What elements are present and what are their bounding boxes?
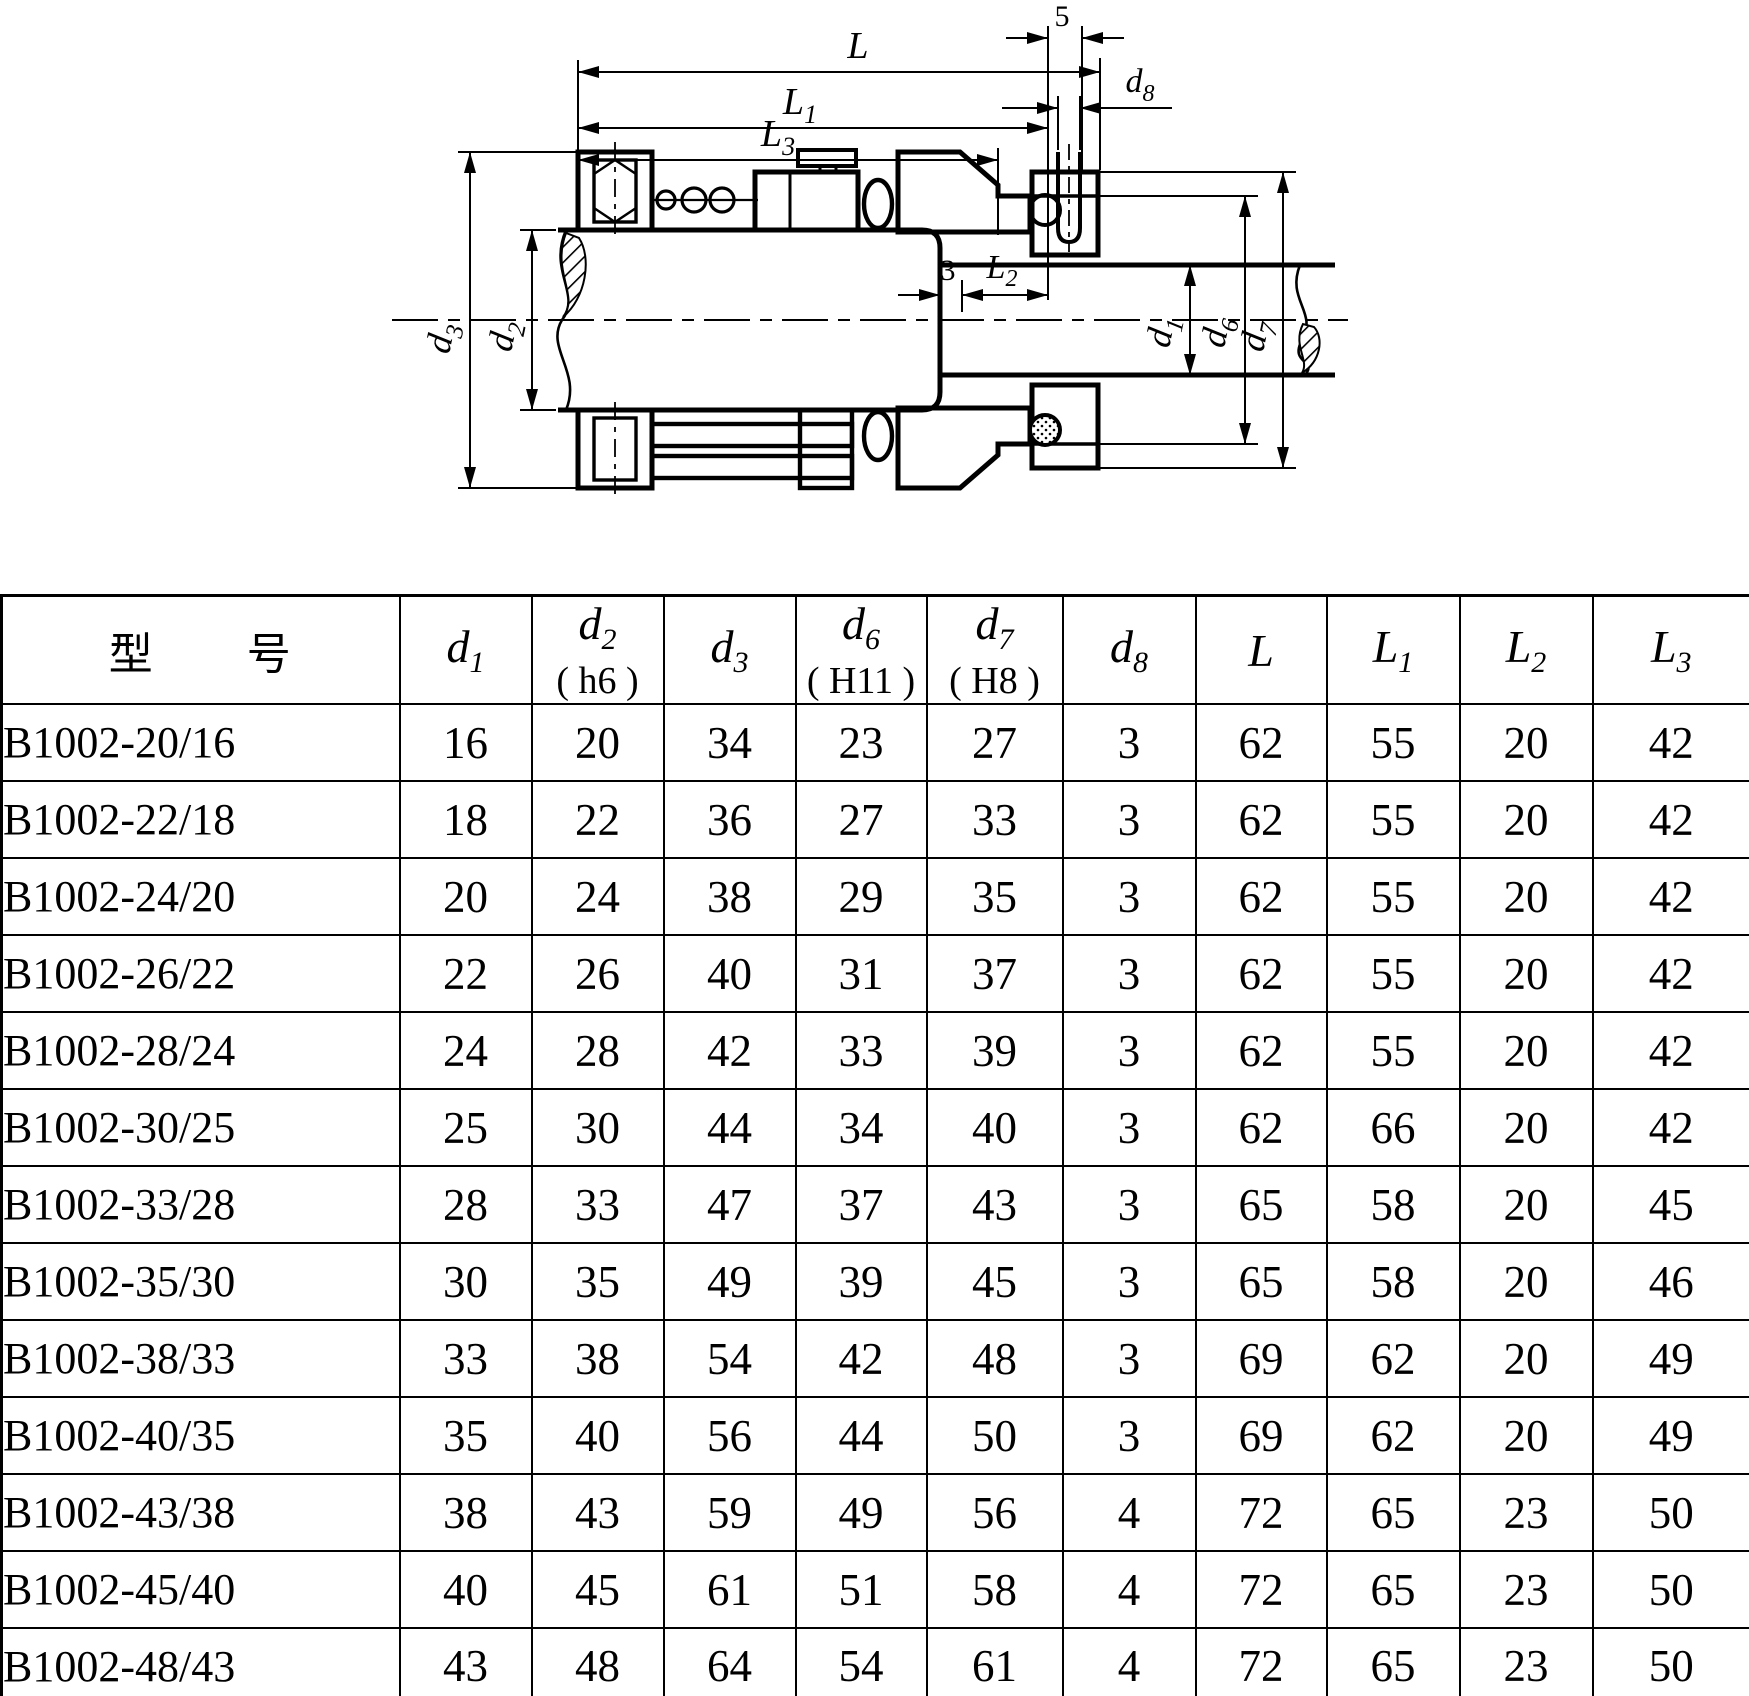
model-cell: B1002-22/18 [2, 781, 400, 858]
value-cell: 28 [532, 1012, 664, 1089]
value-cell: 62 [1327, 1320, 1460, 1397]
value-cell: 62 [1196, 935, 1327, 1012]
value-cell: 65 [1327, 1474, 1460, 1551]
tolerance-note: ( H8 ) [928, 659, 1062, 703]
value-cell: 39 [796, 1243, 927, 1320]
value-cell: 20 [1460, 1243, 1593, 1320]
value-cell: 55 [1327, 858, 1460, 935]
value-cell: 43 [532, 1474, 664, 1551]
model-cell: B1002-28/24 [2, 1012, 400, 1089]
table-row: B1002-43/383843594956472652350 [2, 1474, 1749, 1551]
value-cell: 18 [400, 781, 532, 858]
dim-column-header: L3 [1593, 596, 1749, 705]
dim-label-5: 5 [1055, 0, 1070, 33]
value-cell: 33 [532, 1166, 664, 1243]
value-cell: 38 [664, 858, 796, 935]
value-cell: 24 [400, 1012, 532, 1089]
dim-label-L: L [846, 25, 868, 67]
value-cell: 23 [796, 704, 927, 781]
table-row: B1002-45/404045615158472652350 [2, 1551, 1749, 1628]
value-cell: 3 [1063, 1397, 1196, 1474]
table-row: B1002-48/434348645461472652350 [2, 1628, 1749, 1696]
table-row: B1002-30/252530443440362662042 [2, 1089, 1749, 1166]
value-cell: 3 [1063, 858, 1196, 935]
value-cell: 27 [927, 704, 1063, 781]
model-cell: B1002-35/30 [2, 1243, 400, 1320]
value-cell: 3 [1063, 1320, 1196, 1397]
dim-label-L1: L1 [782, 81, 817, 129]
value-cell: 35 [532, 1243, 664, 1320]
value-cell: 37 [796, 1166, 927, 1243]
value-cell: 40 [927, 1089, 1063, 1166]
gland-top [898, 152, 1030, 232]
value-cell: 49 [796, 1474, 927, 1551]
value-cell: 4 [1063, 1474, 1196, 1551]
value-cell: 44 [664, 1089, 796, 1166]
header-row: 型 号d1d2( h6 )d3d6( H11 )d7( H8 )d8LL1L2L… [2, 596, 1749, 705]
value-cell: 42 [1593, 704, 1749, 781]
table-row: B1002-35/303035493945365582046 [2, 1243, 1749, 1320]
value-cell: 31 [796, 935, 927, 1012]
value-cell: 20 [1460, 858, 1593, 935]
value-cell: 30 [532, 1089, 664, 1166]
value-cell: 20 [1460, 1397, 1593, 1474]
value-cell: 44 [796, 1397, 927, 1474]
value-cell: 36 [664, 781, 796, 858]
value-cell: 42 [1593, 858, 1749, 935]
value-cell: 37 [927, 935, 1063, 1012]
value-cell: 26 [532, 935, 664, 1012]
table-row: B1002-20/161620342327362552042 [2, 704, 1749, 781]
value-cell: 59 [664, 1474, 796, 1551]
value-cell: 23 [1460, 1628, 1593, 1696]
dim-label-d3: d3 [418, 318, 470, 358]
model-cell: B1002-45/40 [2, 1551, 400, 1628]
table-row: B1002-33/282833473743365582045 [2, 1166, 1749, 1243]
table-row: B1002-38/333338544248369622049 [2, 1320, 1749, 1397]
tolerance-note: ( h6 ) [533, 659, 663, 703]
value-cell: 20 [532, 704, 664, 781]
value-cell: 25 [400, 1089, 532, 1166]
table-row: B1002-28/242428423339362552042 [2, 1012, 1749, 1089]
value-cell: 3 [1063, 781, 1196, 858]
value-cell: 62 [1196, 1012, 1327, 1089]
value-cell: 48 [927, 1320, 1063, 1397]
value-cell: 54 [664, 1320, 796, 1397]
gland-bottom [898, 408, 1030, 488]
o-ring-bottom [864, 412, 892, 460]
value-cell: 61 [927, 1628, 1063, 1696]
model-cell: B1002-48/43 [2, 1628, 400, 1696]
value-cell: 50 [1593, 1628, 1749, 1696]
tolerance-note: ( H11 ) [797, 659, 926, 703]
value-cell: 47 [664, 1166, 796, 1243]
model-column-header: 型 号 [2, 596, 400, 705]
value-cell: 45 [1593, 1166, 1749, 1243]
value-cell: 35 [927, 858, 1063, 935]
value-cell: 20 [1460, 1012, 1593, 1089]
value-cell: 34 [664, 704, 796, 781]
value-cell: 20 [1460, 781, 1593, 858]
value-cell: 29 [796, 858, 927, 935]
value-cell: 4 [1063, 1628, 1196, 1696]
value-cell: 72 [1196, 1551, 1327, 1628]
value-cell: 40 [532, 1397, 664, 1474]
value-cell: 72 [1196, 1474, 1327, 1551]
dimension-L1: L1 [578, 81, 1048, 129]
dimensions: 5 L d8 L1 L3 [418, 0, 1296, 488]
value-cell: 55 [1327, 781, 1460, 858]
drive-head [755, 172, 858, 230]
table-row: B1002-40/353540564450369622049 [2, 1397, 1749, 1474]
value-cell: 49 [1593, 1320, 1749, 1397]
value-cell: 58 [927, 1551, 1063, 1628]
value-cell: 42 [796, 1320, 927, 1397]
value-cell: 43 [400, 1628, 532, 1696]
value-cell: 22 [400, 935, 532, 1012]
value-cell: 34 [796, 1089, 927, 1166]
value-cell: 3 [1063, 1166, 1196, 1243]
value-cell: 55 [1327, 704, 1460, 781]
dim-label-L2: L2 [986, 249, 1018, 292]
value-cell: 20 [1460, 935, 1593, 1012]
value-cell: 62 [1196, 704, 1327, 781]
table-row: B1002-26/222226403137362552042 [2, 935, 1749, 1012]
value-cell: 35 [400, 1397, 532, 1474]
value-cell: 38 [532, 1320, 664, 1397]
value-cell: 64 [664, 1628, 796, 1696]
value-cell: 33 [796, 1012, 927, 1089]
value-cell: 43 [927, 1166, 1063, 1243]
value-cell: 38 [400, 1474, 532, 1551]
value-cell: 51 [796, 1551, 927, 1628]
value-cell: 62 [1196, 1089, 1327, 1166]
drive-band-lower [652, 456, 852, 478]
value-cell: 20 [1460, 1166, 1593, 1243]
model-cell: B1002-20/16 [2, 704, 400, 781]
value-cell: 20 [400, 858, 532, 935]
value-cell: 42 [1593, 935, 1749, 1012]
value-cell: 72 [1196, 1628, 1327, 1696]
model-cell: B1002-30/25 [2, 1089, 400, 1166]
drive-tab [798, 150, 856, 166]
value-cell: 58 [1327, 1243, 1460, 1320]
seat-o-ring-bottom [1030, 415, 1060, 445]
value-cell: 33 [400, 1320, 532, 1397]
value-cell: 45 [532, 1551, 664, 1628]
value-cell: 20 [1460, 1089, 1593, 1166]
dim-label-3: 3 [941, 254, 956, 287]
value-cell: 50 [1593, 1551, 1749, 1628]
value-cell: 58 [1327, 1166, 1460, 1243]
value-cell: 42 [1593, 1012, 1749, 1089]
value-cell: 28 [400, 1166, 532, 1243]
dim-column-header: d3 [664, 596, 796, 705]
value-cell: 3 [1063, 704, 1196, 781]
model-cell: B1002-24/20 [2, 858, 400, 935]
value-cell: 48 [532, 1628, 664, 1696]
model-cell: B1002-26/22 [2, 935, 400, 1012]
value-cell: 54 [796, 1628, 927, 1696]
value-cell: 49 [664, 1243, 796, 1320]
dim-label-d8: d8 [1126, 63, 1155, 107]
value-cell: 24 [532, 858, 664, 935]
model-cell: B1002-40/35 [2, 1397, 400, 1474]
value-cell: 69 [1196, 1397, 1327, 1474]
table-row: B1002-24/202024382935362552042 [2, 858, 1749, 935]
value-cell: 46 [1593, 1243, 1749, 1320]
value-cell: 66 [1327, 1089, 1460, 1166]
value-cell: 3 [1063, 1243, 1196, 1320]
right-break-hatch-lens [1299, 324, 1319, 373]
value-cell: 4 [1063, 1551, 1196, 1628]
value-cell: 61 [664, 1551, 796, 1628]
value-cell: 56 [664, 1397, 796, 1474]
spec-table: 型 号d1d2( h6 )d3d6( H11 )d7( H8 )d8LL1L2L… [0, 594, 1749, 1696]
dimension-3: 3 [898, 254, 956, 295]
value-cell: 3 [1063, 935, 1196, 1012]
dim-label-d2: d2 [480, 316, 532, 356]
value-cell: 55 [1327, 935, 1460, 1012]
dim-column-header: L2 [1460, 596, 1593, 705]
value-cell: 23 [1460, 1551, 1593, 1628]
value-cell: 42 [1593, 781, 1749, 858]
value-cell: 62 [1196, 858, 1327, 935]
value-cell: 33 [927, 781, 1063, 858]
value-cell: 69 [1196, 1320, 1327, 1397]
o-ring-top [864, 180, 892, 228]
value-cell: 62 [1196, 781, 1327, 858]
value-cell: 62 [1327, 1397, 1460, 1474]
value-cell: 65 [1196, 1166, 1327, 1243]
dimension-L: L [578, 25, 1100, 72]
shaft [392, 230, 1348, 410]
value-cell: 20 [1460, 1320, 1593, 1397]
left-break-hatch [562, 233, 586, 317]
model-cell: B1002-38/33 [2, 1320, 400, 1397]
value-cell: 39 [927, 1012, 1063, 1089]
value-cell: 50 [927, 1397, 1063, 1474]
value-cell: 65 [1196, 1243, 1327, 1320]
value-cell: 42 [1593, 1089, 1749, 1166]
dim-column-header: d1 [400, 596, 532, 705]
dim-column-header: d8 [1063, 596, 1196, 705]
model-cell: B1002-43/38 [2, 1474, 400, 1551]
value-cell: 40 [664, 935, 796, 1012]
value-cell: 20 [1460, 704, 1593, 781]
value-cell: 40 [400, 1551, 532, 1628]
dim-column-header: L [1196, 596, 1327, 705]
value-cell: 22 [532, 781, 664, 858]
value-cell: 45 [927, 1243, 1063, 1320]
value-cell: 49 [1593, 1397, 1749, 1474]
dimension-5: 5 [1006, 0, 1124, 38]
value-cell: 23 [1460, 1474, 1593, 1551]
dim-column-header: d7( H8 ) [927, 596, 1063, 705]
value-cell: 65 [1327, 1628, 1460, 1696]
dim-column-header: L1 [1327, 596, 1460, 705]
dim-column-header: d2( h6 ) [532, 596, 664, 705]
value-cell: 42 [664, 1012, 796, 1089]
value-cell: 50 [1593, 1474, 1749, 1551]
dimension-d8: d8 [1002, 63, 1172, 108]
spec-table-body: B1002-20/161620342327362552042B1002-22/1… [2, 704, 1749, 1696]
value-cell: 55 [1327, 1012, 1460, 1089]
seal-cross-section-svg: 5 L d8 L1 L3 [0, 0, 1749, 594]
value-cell: 3 [1063, 1012, 1196, 1089]
value-cell: 27 [796, 781, 927, 858]
value-cell: 3 [1063, 1089, 1196, 1166]
value-cell: 65 [1327, 1551, 1460, 1628]
value-cell: 56 [927, 1474, 1063, 1551]
drive-band-upper [652, 424, 852, 446]
value-cell: 16 [400, 704, 532, 781]
seal-cross-section-figure: 5 L d8 L1 L3 [0, 0, 1749, 594]
dim-label-d1: d1 [1138, 312, 1190, 352]
page: 5 L d8 L1 L3 [0, 0, 1749, 1696]
model-cell: B1002-33/28 [2, 1166, 400, 1243]
table-row: B1002-22/181822362733362552042 [2, 781, 1749, 858]
dim-column-header: d6( H11 ) [796, 596, 927, 705]
value-cell: 30 [400, 1243, 532, 1320]
